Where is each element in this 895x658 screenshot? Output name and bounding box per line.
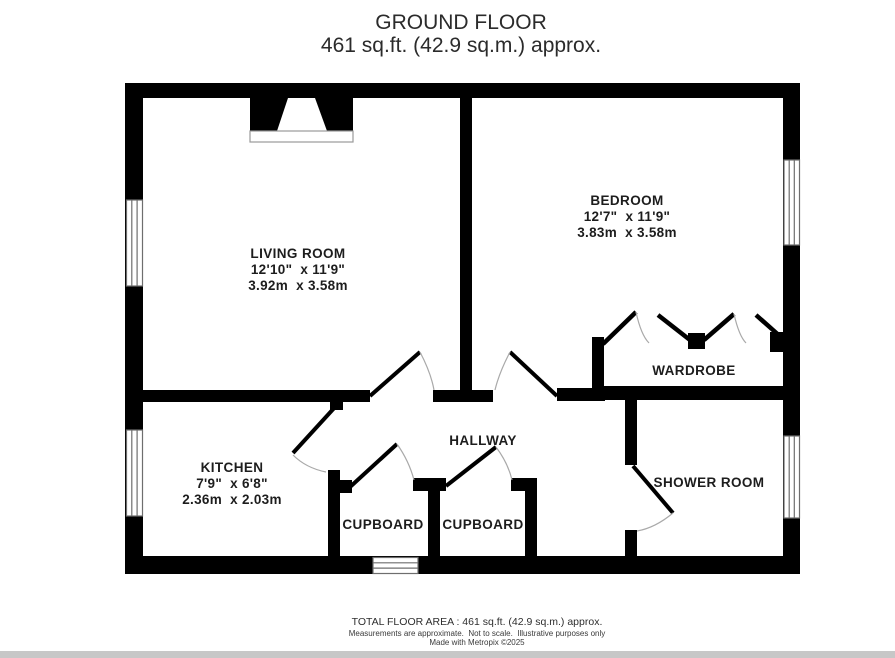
- wall-wardrobe-left-post: [592, 337, 604, 389]
- wardrobe-center-post: [688, 333, 705, 349]
- footer-credit: Made with Metropix ©2025: [429, 638, 525, 647]
- wall-cupboard-divider-top: [413, 478, 446, 491]
- label-kitchen: KITCHEN: [201, 460, 264, 475]
- label-living-room: LIVING ROOM: [250, 246, 345, 261]
- room-living-room: LIVING ROOM 12'10" x 11'9" 3.92m x 3.58m: [248, 246, 348, 293]
- window-bedroom-right: [784, 160, 800, 245]
- door-cupboard-1: [350, 444, 414, 487]
- dim-bedroom-metric: 3.83m x 3.58m: [577, 225, 677, 240]
- door-kitchen: [293, 406, 336, 472]
- label-hallway: HALLWAY: [449, 433, 517, 448]
- door-bedroom: [495, 352, 557, 396]
- window-shower-right: [784, 436, 800, 518]
- bottom-edge-bar: [0, 651, 895, 658]
- page-title: GROUND FLOOR: [375, 11, 547, 34]
- label-cupboard-1: CUPBOARD: [342, 517, 423, 532]
- wall-top: [125, 83, 800, 98]
- wall-hallway-top-stub: [433, 390, 493, 402]
- door-living-room: [370, 352, 434, 396]
- label-wardrobe: WARDROBE: [652, 363, 735, 378]
- room-bedroom: BEDROOM 12'7" x 11'9" 3.83m x 3.58m: [577, 193, 677, 240]
- door-cupboard-2: [446, 447, 512, 486]
- dim-living-room-imperial: 12'10" x 11'9": [251, 262, 345, 277]
- wall-bottom: [125, 556, 800, 574]
- dim-living-room-metric: 3.92m x 3.58m: [248, 278, 348, 293]
- label-cupboard-2: CUPBOARD: [442, 517, 523, 532]
- wall-cupboard-divider: [428, 491, 440, 558]
- dim-bedroom-imperial: 12'7" x 11'9": [584, 209, 671, 224]
- floorplan-page: GROUND FLOOR 461 sq.ft. (42.9 sq.m.) app…: [0, 0, 895, 658]
- footer-disclaimer: Measurements are approximate. Not to sca…: [349, 629, 606, 638]
- wall-cupboard-right-top: [511, 478, 537, 491]
- fireplace: [250, 98, 353, 142]
- dim-kitchen-imperial: 7'9" x 6'8": [196, 476, 268, 491]
- room-kitchen: KITCHEN 7'9" x 6'8" 2.36m x 2.03m: [182, 460, 282, 507]
- wall-living-bottom: [143, 390, 370, 402]
- window-kitchen-left: [127, 430, 143, 516]
- footer: TOTAL FLOOR AREA : 461 sq.ft. (42.9 sq.m…: [349, 616, 606, 647]
- label-shower-room: SHOWER ROOM: [654, 475, 765, 490]
- window-living-left: [127, 200, 143, 286]
- window-bottom: [373, 558, 418, 574]
- fireplace-hearth: [250, 131, 353, 142]
- wall-living-bedroom-divider: [460, 98, 472, 402]
- wardrobe-bifold-doors: [603, 312, 782, 349]
- wall-cupboard-left: [328, 470, 340, 558]
- floorplan-canvas: GROUND FLOOR 461 sq.ft. (42.9 sq.m.) app…: [0, 0, 895, 658]
- footer-total-area: TOTAL FLOOR AREA : 461 sq.ft. (42.9 sq.m…: [352, 616, 603, 628]
- wall-wardrobe-bottom: [592, 386, 783, 400]
- label-bedroom: BEDROOM: [590, 193, 663, 208]
- wall-shower-left-lower: [625, 530, 637, 558]
- page-subtitle-area: 461 sq.ft. (42.9 sq.m.) approx.: [321, 34, 601, 57]
- wall-cupboard-right: [525, 491, 537, 558]
- wall-shower-left-upper: [625, 400, 637, 465]
- dim-kitchen-metric: 2.36m x 2.03m: [182, 492, 282, 507]
